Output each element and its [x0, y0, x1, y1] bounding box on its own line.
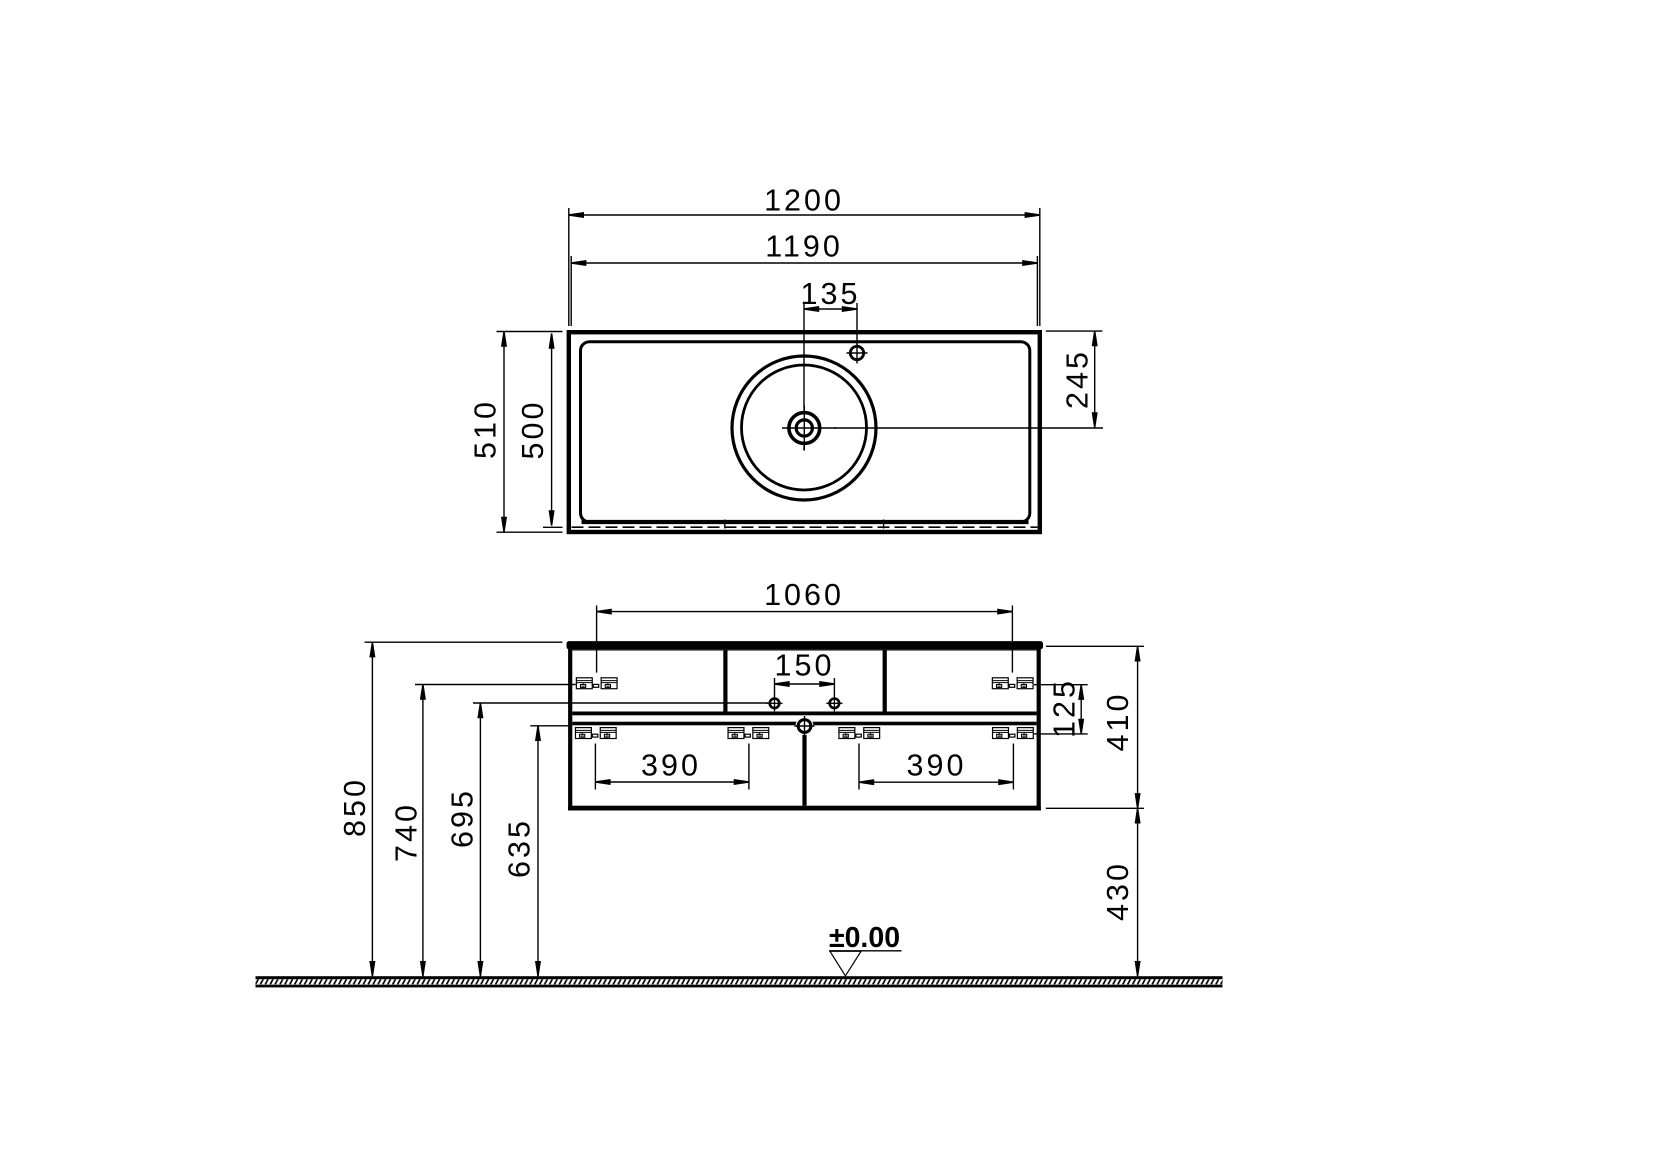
svg-text:390: 390 [907, 749, 967, 783]
svg-text:510: 510 [469, 399, 503, 459]
svg-text:125: 125 [1048, 678, 1082, 738]
svg-text:245: 245 [1061, 349, 1095, 409]
svg-text:850: 850 [338, 777, 372, 837]
svg-text:150: 150 [775, 649, 835, 683]
svg-text:695: 695 [446, 788, 480, 848]
svg-text:135: 135 [801, 277, 861, 311]
svg-text:500: 500 [516, 400, 550, 460]
svg-text:410: 410 [1101, 692, 1135, 752]
svg-text:740: 740 [390, 802, 424, 862]
svg-text:1190: 1190 [765, 230, 843, 264]
svg-text:±0.00: ±0.00 [829, 922, 900, 954]
svg-text:1060: 1060 [764, 578, 844, 612]
svg-text:635: 635 [503, 818, 537, 878]
svg-text:430: 430 [1101, 861, 1135, 921]
svg-text:1200: 1200 [764, 184, 844, 218]
svg-text:390: 390 [641, 749, 701, 783]
